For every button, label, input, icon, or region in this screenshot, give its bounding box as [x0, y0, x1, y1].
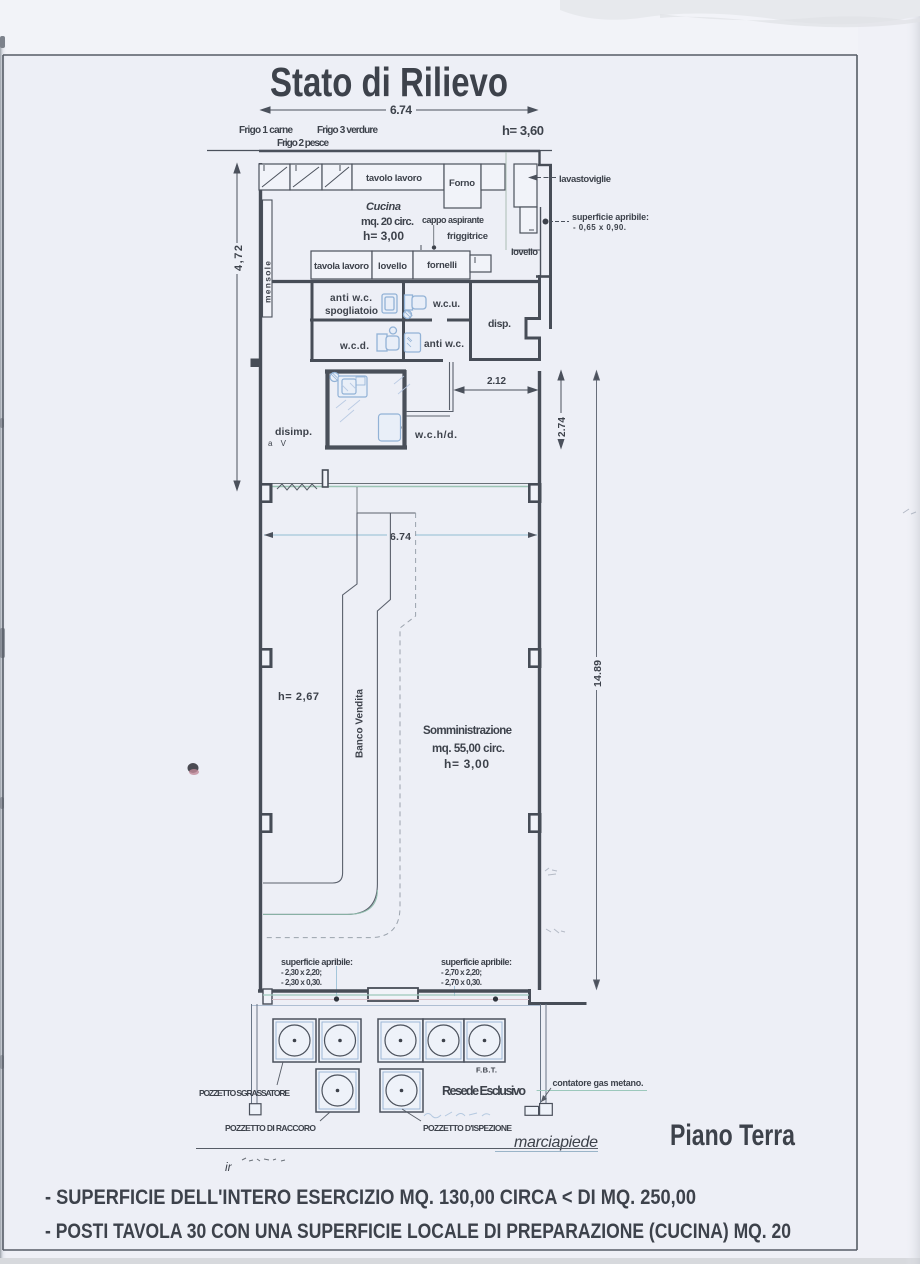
svg-text:superficie apribile:: superficie apribile: [281, 957, 353, 967]
svg-text:Frigo 1 carne: Frigo 1 carne [239, 125, 293, 136]
svg-text:Banco Vendita: Banco Vendita [355, 689, 366, 758]
svg-text:friggitrice: friggitrice [447, 231, 488, 242]
svg-text:spogliatoio: spogliatoio [325, 306, 378, 317]
svg-text:mensole: mensole [263, 261, 273, 303]
svg-text:tavola lavoro: tavola lavoro [314, 261, 369, 272]
svg-text:- SUPERFICIE DELL'INTERO ESERC: - SUPERFICIE DELL'INTERO ESERCIZIO MQ. 1… [45, 1185, 696, 1209]
svg-text:2.74: 2.74 [557, 417, 568, 437]
svg-text:superficie apribile:: superficie apribile: [572, 212, 649, 222]
svg-text:cappo aspirante: cappo aspirante [422, 215, 484, 225]
svg-text:POZZETTO SGRASSATORE: POZZETTO SGRASSATORE [199, 1088, 290, 1098]
svg-text:anti w.c.: anti w.c. [330, 293, 372, 304]
svg-text:Forno: Forno [449, 178, 475, 189]
svg-text:2.12: 2.12 [487, 376, 506, 387]
svg-text:- 2,30 x 0,30.: - 2,30 x 0,30. [281, 978, 322, 987]
svg-text:fornelli: fornelli [427, 260, 457, 271]
svg-text:- 2,30 x 2,20;: - 2,30 x 2,20; [281, 968, 322, 977]
svg-text:contatore gas metano.: contatore gas metano. [553, 1078, 644, 1088]
svg-text:Cucina: Cucina [366, 201, 401, 213]
svg-text:6.74: 6.74 [390, 103, 412, 117]
svg-text:Frigo 2 pesce: Frigo 2 pesce [277, 138, 329, 149]
svg-text:- 2,70 x 0,30.: - 2,70 x 0,30. [441, 978, 482, 987]
svg-text:- POSTI TAVOLA 30 CON UNA SUPE: - POSTI TAVOLA 30 CON UNA SUPERFICIE LOC… [45, 1219, 791, 1243]
svg-text:w.c.d.: w.c.d. [339, 341, 369, 352]
svg-text:h= 3,00: h= 3,00 [444, 757, 489, 771]
svg-text:Resede Esclusivo: Resede Esclusivo [442, 1084, 526, 1098]
svg-text:- 0,65 x 0,90.: - 0,65 x 0,90. [573, 223, 626, 232]
svg-text:Frigo 3 verdure: Frigo 3 verdure [317, 125, 378, 136]
svg-text:disimp.: disimp. [275, 426, 312, 438]
svg-text:POZZETTO DI RACCORO: POZZETTO DI RACCORO [225, 1123, 316, 1133]
svg-text:anti w.c.: anti w.c. [424, 339, 464, 350]
svg-text:Piano Terra: Piano Terra [670, 1119, 795, 1152]
svg-text:POZZETTO D'ISPEZIONE: POZZETTO D'ISPEZIONE [423, 1123, 512, 1133]
svg-text:h= 3,00: h= 3,00 [363, 229, 404, 243]
svg-text:6.74: 6.74 [390, 531, 411, 543]
svg-text:- 2,70 x 2,20;: - 2,70 x 2,20; [441, 968, 482, 977]
svg-text:lovello: lovello [378, 261, 407, 272]
svg-text:4,72: 4,72 [233, 245, 245, 271]
svg-text:mq. 55,00 circ.: mq. 55,00 circ. [432, 743, 505, 755]
svg-text:tavolo lavoro: tavolo lavoro [366, 173, 422, 184]
svg-text:ir: ir [225, 1160, 233, 1174]
svg-text:h= 2,67: h= 2,67 [278, 691, 319, 703]
svg-text:w.c.u.: w.c.u. [432, 299, 460, 310]
svg-text:h= 3,60: h= 3,60 [502, 123, 544, 138]
svg-text:disp.: disp. [488, 318, 511, 330]
svg-text:14.89: 14.89 [592, 660, 604, 687]
svg-text:Somministrazione: Somministrazione [423, 725, 512, 737]
svg-text:w.c.h/d.: w.c.h/d. [414, 429, 457, 441]
svg-text:lovello: lovello [511, 247, 538, 258]
svg-text:mq. 20 circ.: mq. 20 circ. [361, 216, 414, 228]
svg-text:a V: a V [268, 439, 287, 448]
svg-text:Stato di Rilievo: Stato di Rilievo [270, 59, 508, 105]
svg-text:lavastoviglie: lavastoviglie [559, 174, 611, 185]
svg-text:F.B.T.: F.B.T. [476, 1066, 497, 1075]
svg-text:superficie apribile:: superficie apribile: [441, 957, 512, 967]
